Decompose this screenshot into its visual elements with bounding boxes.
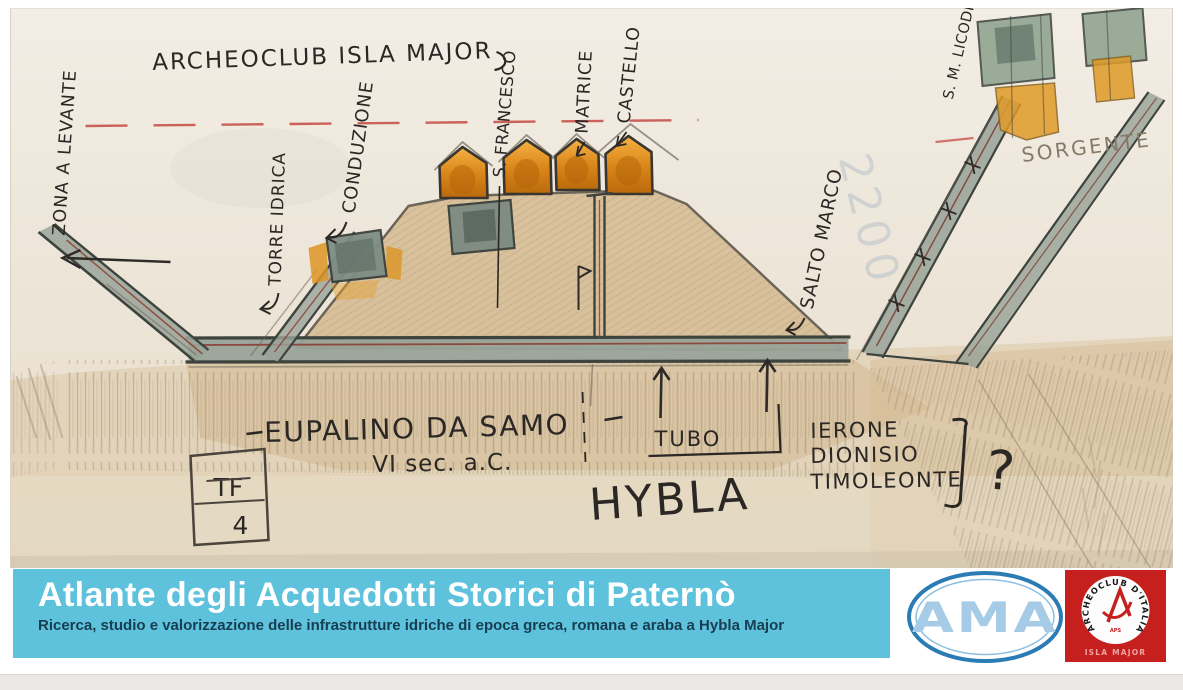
slide: ARCHEOCLUB ISLA MAJOR ZONA A LEVANTE TOR… xyxy=(0,0,1183,690)
archeoclub-aps: APS xyxy=(1110,628,1122,634)
page-title: Atlante degli Acquedotti Storici di Pate… xyxy=(38,577,890,614)
question-mark: ? xyxy=(983,438,1017,503)
hill-building xyxy=(449,200,515,254)
monogram-tf: TF xyxy=(213,473,244,502)
label-dionisio: DIONISIO xyxy=(810,442,919,468)
archeoclub-logo: ARCHEOCLUB D'ITALIA APS ISLA MAJOR xyxy=(1065,570,1166,662)
label-tubo: TUBO xyxy=(654,427,722,451)
aqueduct-sketch: ARCHEOCLUB ISLA MAJOR ZONA A LEVANTE TOR… xyxy=(10,8,1173,568)
bottom-grey-strip xyxy=(0,674,1183,690)
ama-logo: AMA xyxy=(904,567,1066,667)
label-ierone: IERONE xyxy=(810,417,899,443)
title-banner: Atlante degli Acquedotti Storici di Pate… xyxy=(13,569,890,658)
label-timoleonte: TIMOLEONTE xyxy=(809,467,962,494)
label-eupalino-epoca: VI sec. a.C. xyxy=(372,450,512,478)
archeoclub-isla-major: ISLA MAJOR xyxy=(1085,648,1147,657)
monogram-4: 4 xyxy=(233,511,249,540)
ama-wordmark: AMA xyxy=(912,594,1059,642)
aqueduct-sketch-photo: ARCHEOCLUB ISLA MAJOR ZONA A LEVANTE TOR… xyxy=(10,8,1173,568)
page-subtitle: Ricerca, studio e valorizzazione delle i… xyxy=(38,617,890,634)
